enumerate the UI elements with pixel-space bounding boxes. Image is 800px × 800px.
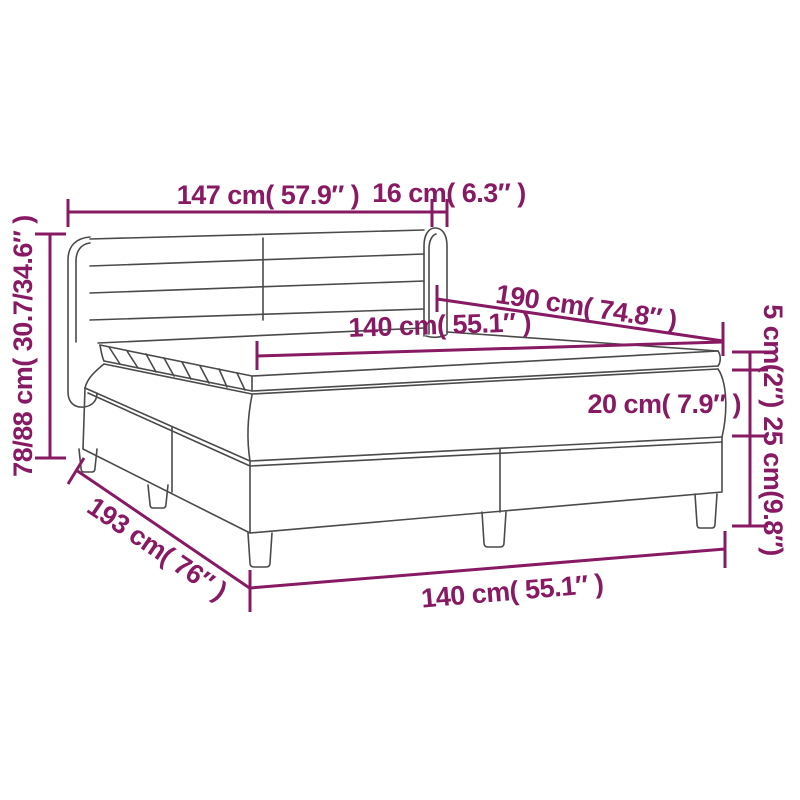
diagram-canvas: 147 cm( 57.9″ ) 16 cm( 6.3″ ) 78/88 cm( … <box>0 0 800 800</box>
dim-label-base-height: 25 cm(9.8″) <box>758 416 788 556</box>
dim-label-bed-height-range: 78/88 cm( 30.7/34.6″ ) <box>8 215 38 477</box>
dim-label-headboard-wing-depth: 16 cm( 6.3″ ) <box>372 178 526 208</box>
dim-line-bed-height <box>35 234 66 458</box>
dim-line-mattress-width <box>257 341 723 370</box>
dim-label-topper-thickness: 5 cm(2″) <box>758 304 788 407</box>
headboard-left-pillar <box>68 237 97 407</box>
bed-dimensions-diagram: 147 cm( 57.9″ ) 16 cm( 6.3″ ) 78/88 cm( … <box>0 0 800 800</box>
leg-front-right <box>695 494 717 528</box>
dim-label-mattress-width: 140 cm( 55.1″ ) <box>348 307 531 343</box>
dim-label-mattress-thickness: 20 cm( 7.9″ ) <box>587 389 741 419</box>
dim-label-base-width: 140 cm( 55.1″ ) <box>420 568 604 613</box>
leg-front-middle <box>482 512 506 547</box>
headboard-face <box>90 230 424 320</box>
leg-left-middle <box>148 485 168 508</box>
dimension-annotations: 147 cm( 57.9″ ) 16 cm( 6.3″ ) 78/88 cm( … <box>8 178 788 614</box>
leg-front-left <box>248 533 272 567</box>
dim-label-headboard-width: 147 cm( 57.9″ ) <box>177 180 360 210</box>
